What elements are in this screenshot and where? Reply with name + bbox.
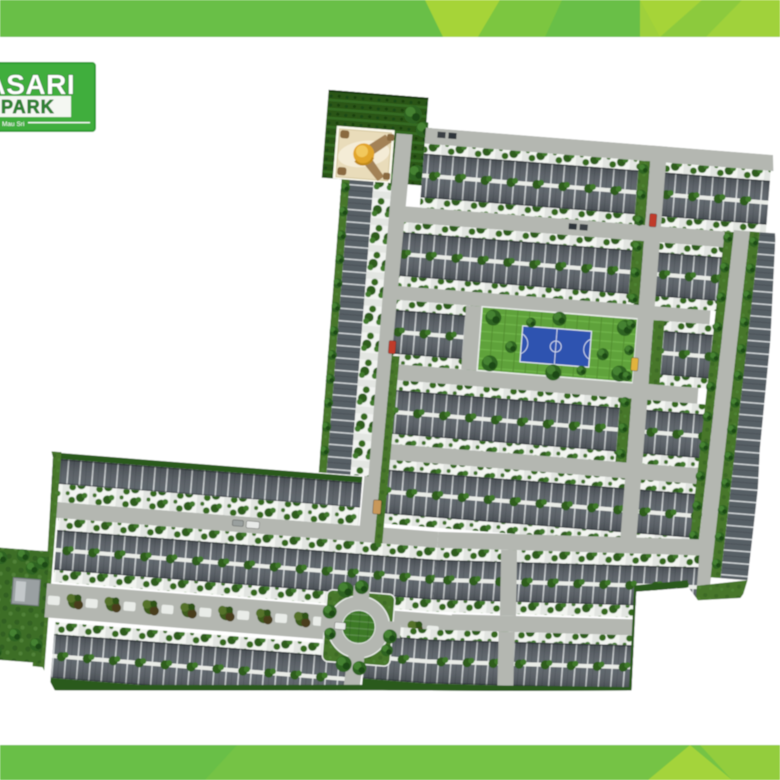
svg-text:Mau Sri: Mau Sri xyxy=(2,121,24,128)
svg-text:TASARI: TASARI xyxy=(0,69,75,100)
svg-text:PARK: PARK xyxy=(1,97,55,117)
